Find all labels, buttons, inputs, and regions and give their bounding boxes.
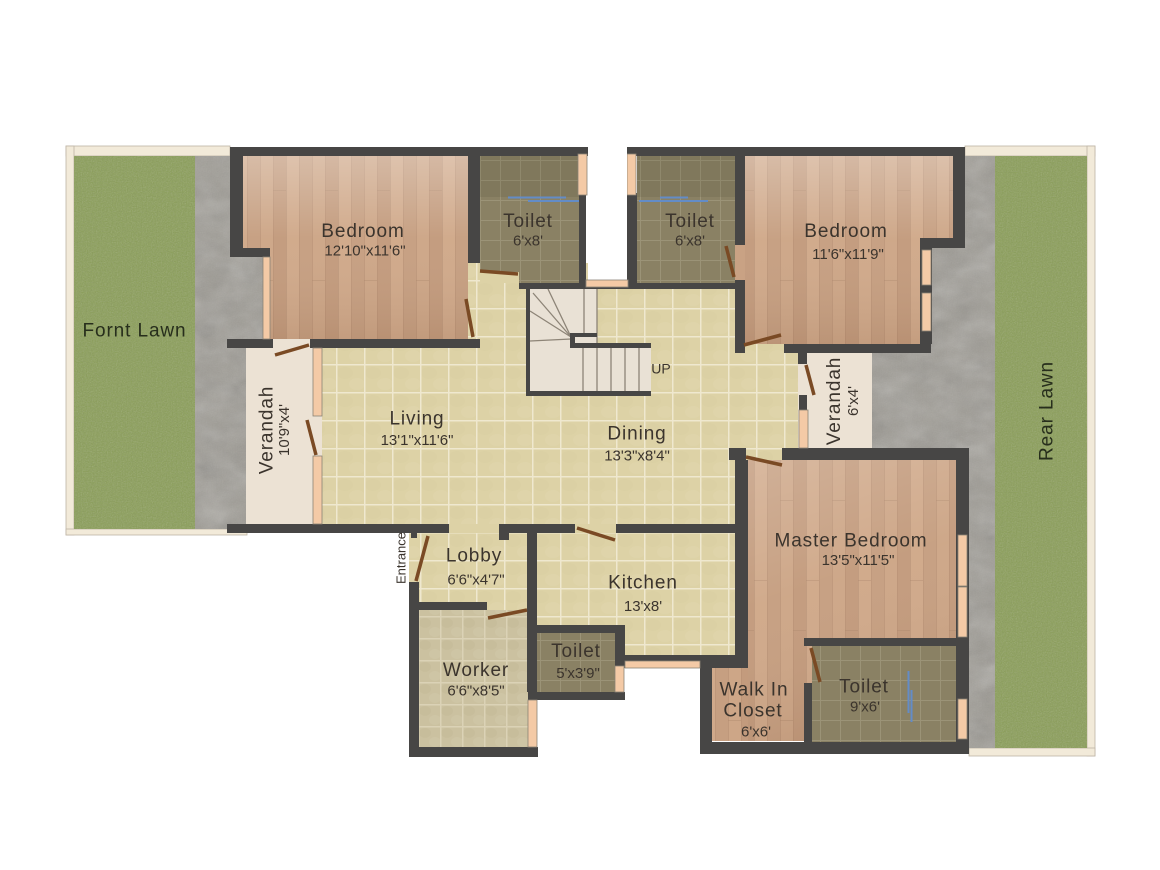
- svg-text:10'9"x4': 10'9"x4': [276, 404, 293, 456]
- svg-text:13'1"x11'6": 13'1"x11'6": [381, 432, 454, 449]
- svg-text:Rear Lawn: Rear Lawn: [1037, 361, 1058, 461]
- svg-text:Verandah: Verandah: [257, 386, 278, 475]
- svg-text:6'x8': 6'x8': [513, 233, 543, 250]
- svg-text:Living: Living: [389, 409, 444, 430]
- svg-text:6'x8': 6'x8': [675, 233, 705, 250]
- svg-text:Toilet: Toilet: [839, 677, 889, 698]
- svg-text:Toilet: Toilet: [503, 211, 553, 232]
- svg-text:Verandah: Verandah: [824, 357, 845, 446]
- svg-text:Toilet: Toilet: [665, 211, 715, 232]
- svg-text:13'3"x8'4": 13'3"x8'4": [604, 448, 670, 465]
- svg-text:Lobby: Lobby: [446, 546, 502, 567]
- svg-text:11'6"x11'9": 11'6"x11'9": [812, 246, 884, 263]
- svg-text:6'6"x8'5": 6'6"x8'5": [447, 683, 504, 700]
- svg-text:9'x6': 9'x6': [850, 699, 880, 716]
- svg-text:6'6"x4'7": 6'6"x4'7": [447, 572, 504, 589]
- svg-text:Toilet: Toilet: [551, 641, 601, 662]
- svg-text:Walk In: Walk In: [720, 680, 789, 701]
- svg-text:Dining: Dining: [607, 424, 666, 445]
- svg-text:Closet: Closet: [723, 701, 782, 722]
- svg-text:Kitchen: Kitchen: [608, 573, 678, 594]
- svg-text:12'10"x11'6": 12'10"x11'6": [324, 243, 405, 260]
- svg-text:UP: UP: [651, 361, 670, 377]
- svg-text:13'x8': 13'x8': [624, 598, 662, 615]
- svg-text:Master Bedroom: Master Bedroom: [774, 531, 927, 552]
- svg-text:Fornt Lawn: Fornt Lawn: [82, 321, 186, 342]
- svg-text:6'x6': 6'x6': [741, 724, 771, 741]
- svg-text:5'x3'9": 5'x3'9": [556, 665, 600, 682]
- svg-text:13'5"x11'5": 13'5"x11'5": [822, 552, 895, 569]
- svg-text:Entrance: Entrance: [394, 532, 409, 584]
- svg-text:Worker: Worker: [443, 660, 509, 681]
- svg-text:Bedroom: Bedroom: [321, 221, 404, 242]
- svg-text:Bedroom: Bedroom: [804, 221, 887, 242]
- svg-text:6'x4': 6'x4': [845, 386, 862, 416]
